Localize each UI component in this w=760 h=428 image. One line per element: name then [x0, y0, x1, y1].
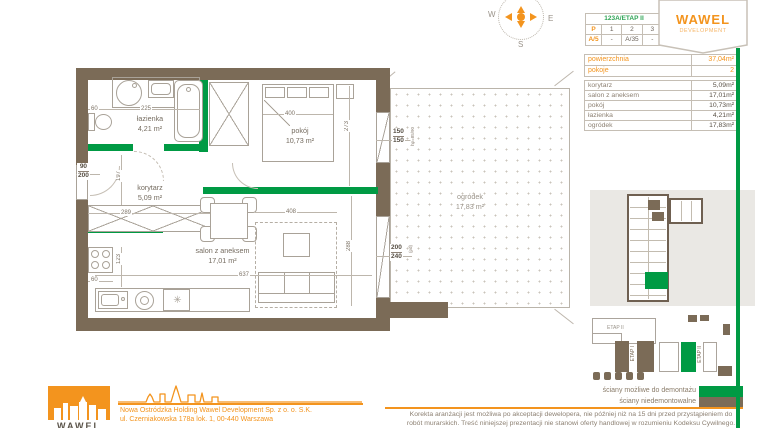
- room-label-ogrodek: ogródek 17,83 m²: [430, 192, 510, 212]
- window1-size-label: 150 150: [392, 128, 405, 145]
- site-plan-thumbnail: ETAP II ETAP I ETAP II: [585, 313, 755, 383]
- dimension-label-kitchen-depth: 123: [116, 253, 122, 265]
- room-name: pokój: [265, 126, 335, 136]
- wawel-development-badge: WAWEL DEVELOPMENT: [658, 0, 748, 56]
- unit-table-cell: -: [601, 35, 621, 45]
- unit-table-cell: A/5: [586, 35, 601, 45]
- wardrobe-hall: [88, 205, 218, 232]
- summary-label: powierzchnia: [585, 55, 691, 65]
- logo-skyline-shape: [70, 406, 78, 420]
- window-glazing-line: [377, 217, 389, 297]
- site-building-green: [681, 342, 696, 372]
- unit-table-floors-row: P 1 2 3: [586, 24, 662, 35]
- door-width: 90: [78, 163, 89, 172]
- site-object: [718, 366, 732, 376]
- room-label-salon: salon z aneksem 17,01 m²: [180, 246, 265, 266]
- washbasin-bowl: [151, 83, 171, 95]
- room-name: salon z aneksem: [180, 246, 265, 256]
- window-width: 200: [391, 244, 402, 253]
- pillow: [287, 87, 307, 98]
- site-object: [700, 315, 709, 321]
- room-row-label: salon z aneksem: [585, 91, 691, 100]
- room-label-lazienka: łazienka 4,21 m²: [110, 114, 190, 134]
- summary-value: 2: [691, 66, 736, 76]
- site-etap1-label: ETAP I: [630, 346, 636, 361]
- demountable-wall-bathroom-bottom: [164, 144, 208, 151]
- badge-brand-subtitle: DEVELOPMENT: [658, 28, 748, 34]
- room-name: łazienka: [110, 114, 190, 124]
- disclaimer-line: robót murarskich. Treść niniejszej preze…: [398, 420, 744, 428]
- highlighted-unit: [645, 272, 668, 289]
- unit-table-cell: P: [586, 25, 601, 35]
- window-150x150: [376, 112, 390, 163]
- sofa-seat-line: [284, 273, 285, 294]
- unit-table-cell: 1: [601, 25, 621, 35]
- compass: W E S: [488, 0, 558, 52]
- floor-plan-page: W E S 123A/ETAP II P 1 2 3 A/5 - A/35 - …: [0, 0, 760, 428]
- site-tree: [637, 372, 644, 380]
- window2-note: (pd): [409, 245, 414, 253]
- company-address: ul. Czerniakowska 178a lok. 1, 00-440 Wa…: [120, 416, 273, 424]
- summary-value: 37,04m²: [691, 55, 736, 65]
- legend-label-demountable: ściany możliwe do demontażu: [556, 386, 696, 396]
- wall-left-upper: [76, 68, 88, 165]
- window2-size-label: 200 240: [390, 244, 403, 261]
- wall-bottom: [76, 318, 390, 331]
- pillow: [265, 87, 285, 98]
- summary-row: powierzchnia 37,04m²: [585, 55, 736, 65]
- bedroom-door-swing-arc: [232, 163, 258, 189]
- room-label-pokoj: pokój 10,73 m²: [265, 126, 335, 146]
- dimension-label-carpet: 408: [285, 209, 297, 215]
- room-label-korytarz: korytarz 5,09 m²: [115, 183, 185, 203]
- compass-center-dot: [517, 13, 525, 21]
- logo-skyline-shape: [98, 409, 106, 420]
- legend-divider-line: [385, 407, 743, 409]
- dimension-label-salon-depth: 288: [346, 240, 352, 252]
- dimension-label-toilet: 60: [90, 106, 99, 112]
- company-name: Nowa Ostródzka Holding Wawel Development…: [120, 407, 312, 415]
- site-building-white: [659, 342, 679, 372]
- dishwasher-icon: ✳: [164, 292, 191, 310]
- coffee-table: [283, 233, 310, 257]
- dimension-label-bath: 225: [140, 106, 152, 112]
- room-area: 17,83 m²: [430, 202, 510, 212]
- building-unit-lines: [672, 201, 700, 221]
- bathtub-drain: [186, 87, 191, 92]
- room-row-value: 17,01m²: [691, 91, 736, 100]
- wardrobe-top: [209, 82, 249, 146]
- sofa: [258, 272, 335, 303]
- site-building-brown: [615, 341, 629, 372]
- nightstand: [336, 84, 354, 99]
- dimension-label-kitchen-width: 60: [90, 277, 99, 283]
- kitchen-sink-bowl: [101, 294, 119, 306]
- rooms-table-row: korytarz 5,09m²: [585, 81, 736, 90]
- pillow: [309, 87, 329, 98]
- room-row-label: korytarz: [585, 81, 691, 90]
- disclaimer: Korekta aranżacji jest możliwa po akcept…: [398, 411, 744, 428]
- demountable-wall-salon-divider: [203, 187, 378, 194]
- footer-divider-line: [118, 403, 363, 405]
- dimension-label-bed: 400: [284, 111, 296, 117]
- dimension-label-wardrobe: 289: [120, 210, 132, 216]
- washer-drum-inner: [140, 296, 149, 305]
- wawel-logo: [48, 386, 110, 420]
- wawel-logo-text: WAWEL: [48, 421, 110, 428]
- rooms-table-row: ogródek 17,83m²: [585, 120, 736, 130]
- summary-row: pokoje 2: [585, 65, 736, 76]
- compass-arrow-west-icon: [505, 13, 512, 21]
- wall-right-segment: [376, 163, 390, 216]
- sofa-seat-line: [309, 273, 310, 294]
- unit-table-unit-row: A/5 - A/35 -: [586, 34, 662, 45]
- room-row-value: 4,21m²: [691, 111, 736, 120]
- unit-number-table: 123A/ETAP II P 1 2 3 A/5 - A/35 -: [585, 13, 663, 46]
- skyline-art: [116, 381, 364, 405]
- toilet-tank: [88, 113, 95, 131]
- compass-south-label: S: [518, 40, 523, 49]
- entry-door-size-label: 90 200: [77, 163, 90, 180]
- balcony-door-200x240: [376, 216, 390, 298]
- garden-wall-chunk: [390, 302, 448, 318]
- room-name: korytarz: [115, 183, 185, 193]
- sofa-back-line: [259, 293, 334, 294]
- unit-table-title: 123A/ETAP II: [586, 14, 662, 24]
- site-object: [688, 315, 697, 322]
- stove-burner: [102, 250, 110, 258]
- room-area: 17,01 m²: [180, 256, 265, 266]
- washing-machine: [116, 80, 142, 106]
- compass-arrow-north-icon: [517, 6, 525, 13]
- logo-skyline-shape: [89, 405, 96, 420]
- room-row-value: 17,83m²: [691, 121, 736, 130]
- badge-brand-name: WAWEL: [658, 12, 748, 27]
- building-core: [648, 200, 660, 210]
- dimension-label-room-depth: 273: [344, 120, 350, 132]
- window-glazing-line: [377, 113, 389, 162]
- building-outline-wing: [669, 198, 703, 224]
- unit-table-cell: A/35: [621, 35, 641, 45]
- room-row-value: 5,09m²: [691, 81, 736, 90]
- demountable-wall-bathroom-bottom: [88, 144, 133, 151]
- dimension-line: [88, 213, 218, 214]
- rooms-table-row: łazienka 4,21m²: [585, 110, 736, 120]
- rooms-table-row: salon z aneksem 17,01m²: [585, 90, 736, 100]
- wall-right-segment: [376, 298, 390, 331]
- rooms-table: korytarz 5,09m² salon z aneksem 17,01m² …: [584, 80, 737, 131]
- logo-skyline-shape: [63, 403, 68, 420]
- room-row-label: ogródek: [585, 121, 691, 130]
- room-area: 4,21 m²: [110, 124, 190, 134]
- bathroom-door-swing-arc: [134, 151, 164, 181]
- dishwasher: ✳: [163, 289, 190, 311]
- room-row-label: łazienka: [585, 111, 691, 120]
- site-tree: [626, 372, 633, 380]
- site-building-white: [703, 342, 717, 372]
- wall-right-segment: [376, 68, 390, 112]
- disclaimer-line: Korekta aranżacji jest możliwa po akcept…: [398, 411, 744, 420]
- compass-arrow-east-icon: [530, 13, 537, 21]
- building-core: [652, 212, 664, 221]
- summary-table: powierzchnia 37,04m² pokoje 2: [584, 54, 737, 77]
- dimension-line: [263, 114, 333, 115]
- logo-skyline-shape: [54, 408, 61, 420]
- kitchen-sink-drain: [121, 297, 125, 301]
- dimension-label-salon-width: 637: [238, 272, 250, 278]
- room-name: ogródek: [430, 192, 510, 202]
- compass-arrow-south-icon: [517, 21, 525, 28]
- rooms-table-row: pokój 10,73m²: [585, 100, 736, 110]
- window1-note: hp=85/90: [411, 127, 416, 146]
- building-plan-thumbnail: [590, 190, 755, 306]
- window-height: 150: [393, 137, 404, 145]
- unit-table-cell: 2: [621, 25, 641, 35]
- room-area: 5,09 m²: [115, 193, 185, 203]
- compass-west-label: W: [488, 10, 496, 19]
- wall-left-lower: [76, 200, 88, 331]
- site-outline-label: ETAP II: [607, 325, 624, 331]
- stove-burner: [91, 261, 99, 269]
- dining-table: [210, 203, 248, 239]
- summary-label: pokoje: [585, 66, 691, 76]
- window-width: 150: [393, 128, 404, 137]
- dimension-label-hall: 197: [116, 170, 122, 182]
- room-row-value: 10,73m²: [691, 101, 736, 110]
- logo-skyline-shape: [79, 402, 87, 420]
- dimension-line: [95, 275, 372, 276]
- site-object: [723, 324, 730, 335]
- room-area: 10,73 m²: [265, 136, 335, 146]
- stove-burner: [91, 250, 99, 258]
- green-divider-bar: [736, 48, 740, 428]
- door-height: 200: [78, 172, 89, 180]
- site-building-brown: [637, 341, 654, 372]
- garden-corner-line: [554, 309, 574, 325]
- washing-machine-knob: [132, 83, 137, 88]
- site-tree: [593, 372, 600, 380]
- stove-burner: [102, 261, 110, 269]
- window-height: 240: [391, 253, 402, 261]
- room-row-label: pokój: [585, 101, 691, 110]
- legend-label-fixed: ściany niedemontowalne: [556, 397, 696, 407]
- garden-corner-line: [554, 71, 574, 87]
- dimension-line: [349, 86, 350, 186]
- site-tree: [615, 372, 622, 380]
- site-tree: [604, 372, 611, 380]
- compass-east-label: E: [548, 14, 553, 23]
